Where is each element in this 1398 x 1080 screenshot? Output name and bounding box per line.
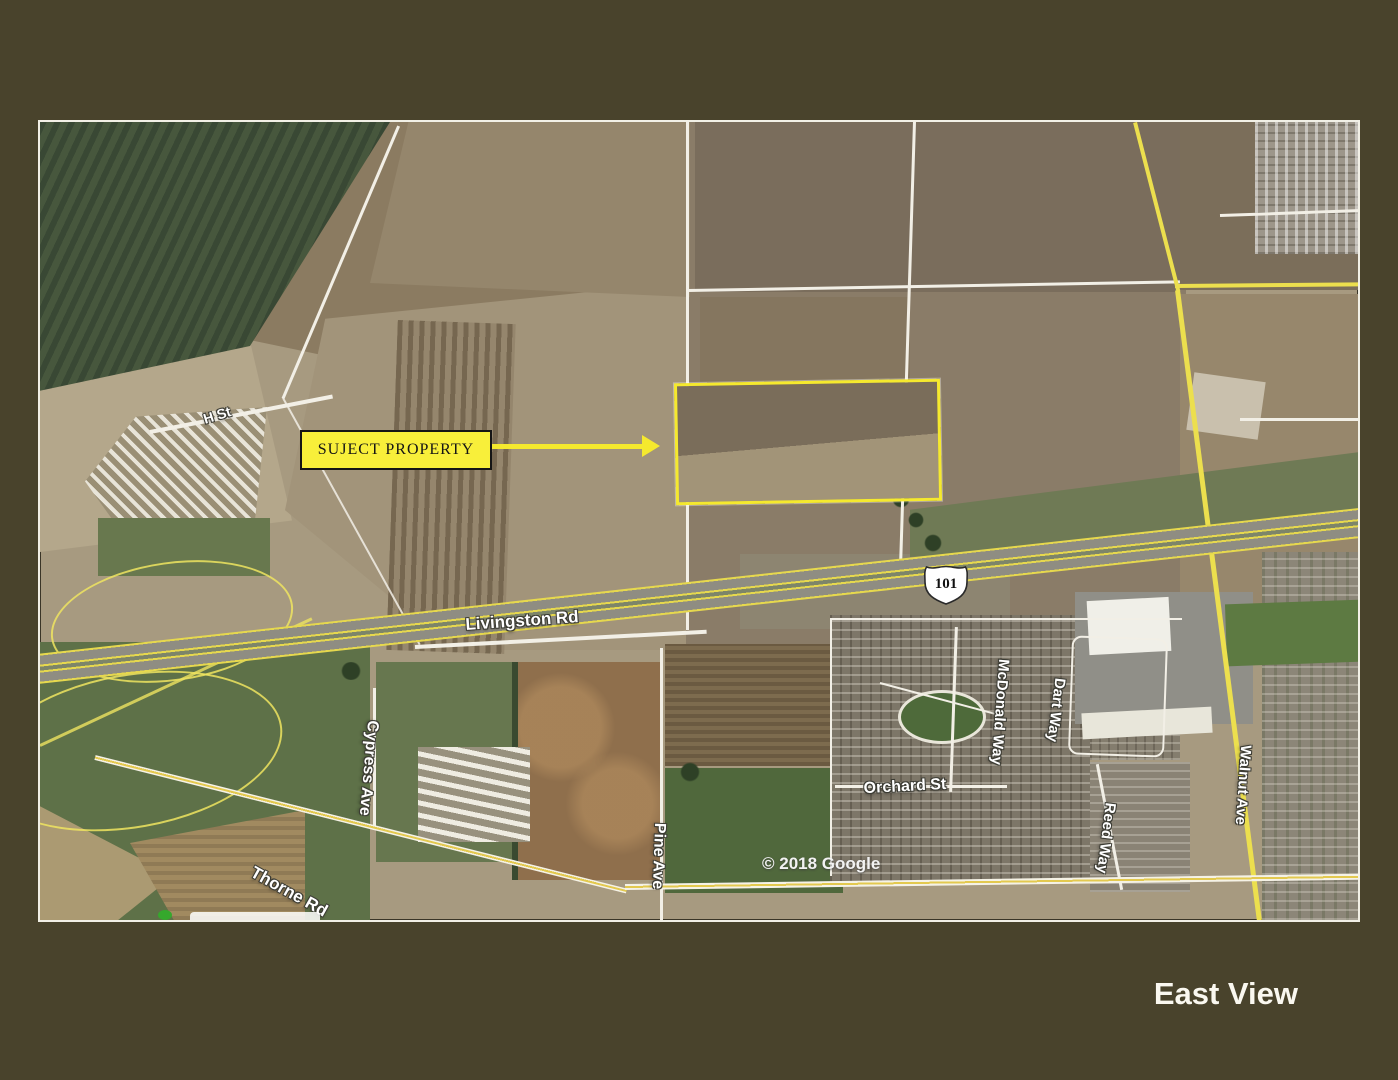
field-patch: [700, 297, 910, 382]
aerial-map: SUJECT PROPERTY 101 H St Livingston Rd C…: [38, 120, 1360, 922]
field-patch: [665, 644, 843, 766]
tree: [680, 762, 700, 782]
map-control-partial: [190, 912, 320, 920]
slide-title: East View: [1154, 976, 1298, 1012]
slide: SUJECT PROPERTY 101 H St Livingston Rd C…: [0, 0, 1398, 1080]
field-patch: [665, 768, 843, 893]
dirt-lot: [518, 662, 660, 880]
tree: [908, 512, 924, 528]
residential-subdivision: [830, 615, 1090, 883]
sports-field: [1225, 600, 1360, 667]
dart-way-road: [1068, 635, 1168, 757]
map-control-dot: [158, 910, 172, 920]
callout-arrow: [492, 444, 644, 449]
road: [686, 122, 689, 630]
us-101-shield-number: 101: [935, 576, 958, 592]
road: [1240, 418, 1360, 421]
subject-property-callout-label: SUJECT PROPERTY: [318, 441, 474, 459]
road: [830, 618, 832, 876]
road-label-pine-ave: Pine Ave: [648, 823, 668, 890]
storage-facility: [418, 747, 530, 842]
google-attribution: © 2018 Google: [762, 854, 880, 874]
urban-block: [1255, 122, 1358, 254]
us-101-shield: 101: [922, 562, 970, 611]
field-patch: [695, 122, 1180, 292]
callout-arrow-head: [642, 435, 660, 457]
field-patch: [370, 122, 690, 297]
subject-property-callout: SUJECT PROPERTY: [300, 430, 492, 470]
road: [830, 618, 1182, 620]
subject-property-outline: [674, 379, 942, 506]
tree: [924, 534, 942, 552]
tree: [340, 662, 362, 680]
